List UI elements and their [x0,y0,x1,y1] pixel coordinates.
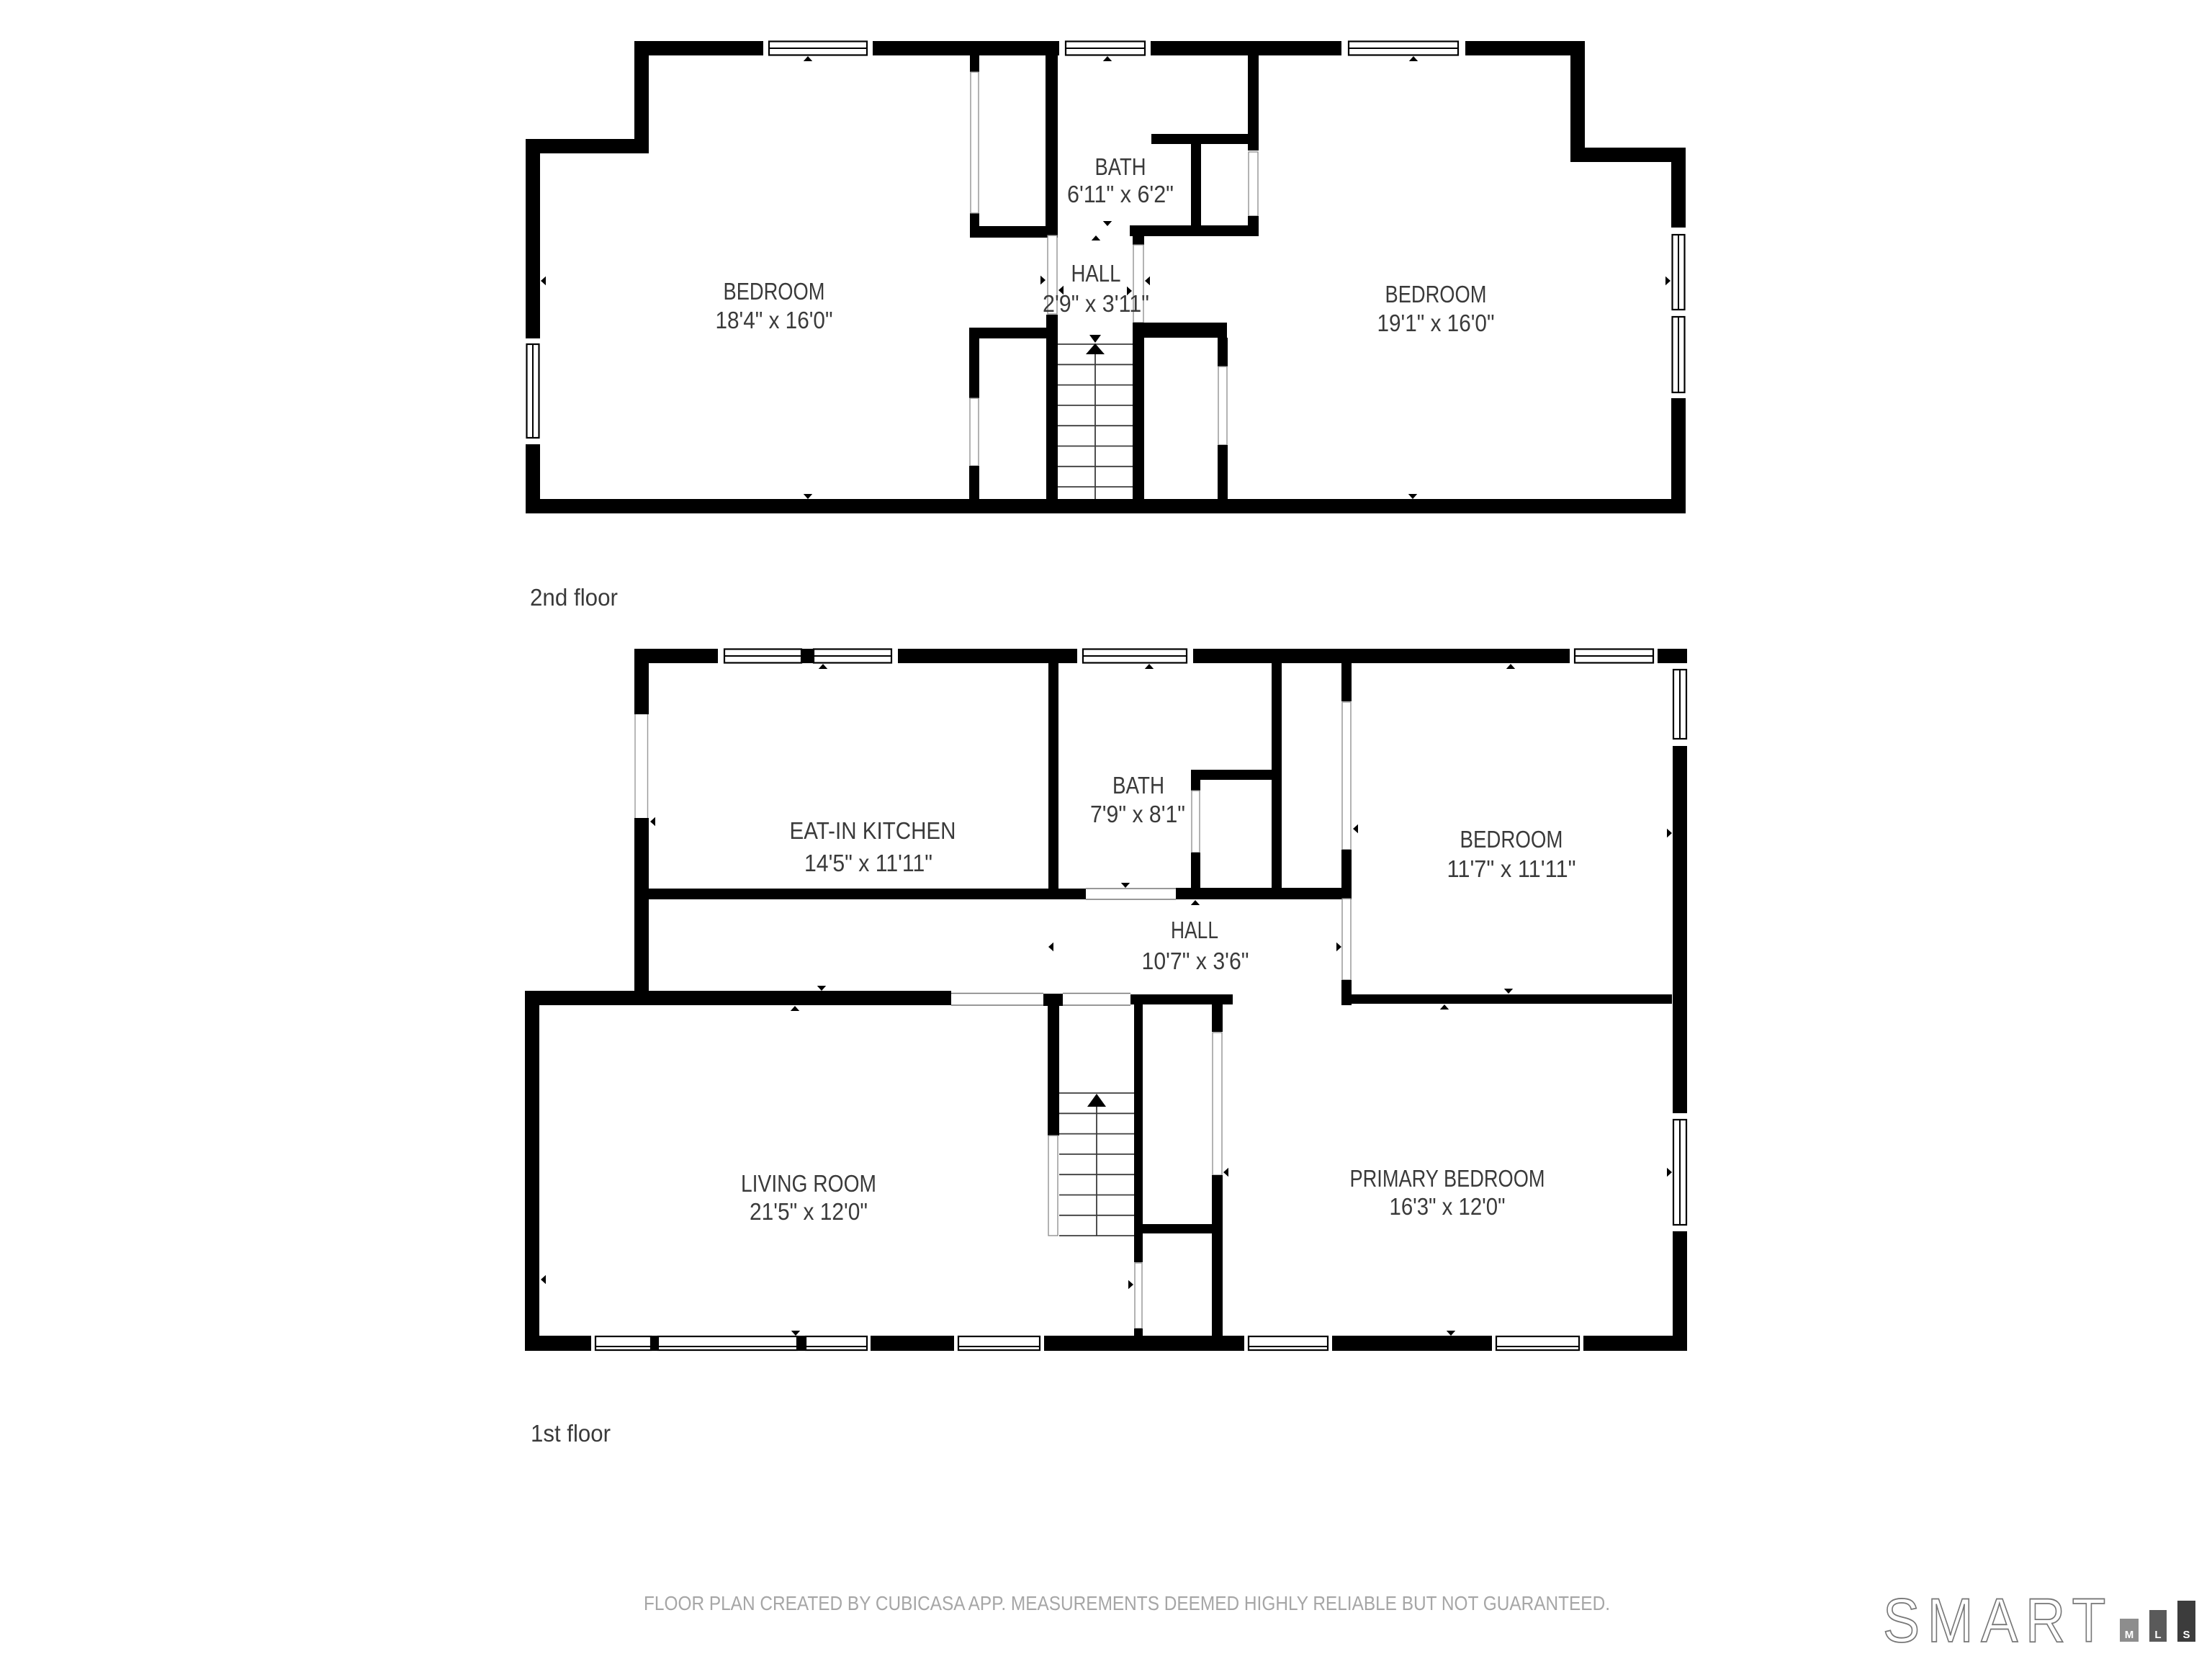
svg-text:1st floor: 1st floor [531,1421,611,1447]
svg-text:19'1" x 16'0": 19'1" x 16'0" [1377,310,1495,337]
svg-text:2nd floor: 2nd floor [530,585,618,611]
svg-text:SMART: SMART [1883,1586,2113,1655]
svg-text:18'4" x 16'0": 18'4" x 16'0" [716,307,833,334]
svg-text:7'9" x 8'1": 7'9" x 8'1" [1090,801,1185,828]
svg-text:16'3" x 12'0": 16'3" x 12'0" [1390,1194,1506,1220]
svg-text:2'9" x 3'11": 2'9" x 3'11" [1043,291,1149,318]
svg-text:BEDROOM: BEDROOM [724,279,825,305]
svg-text:11'7" x 11'11": 11'7" x 11'11" [1447,856,1576,883]
svg-text:M: M [2125,1629,2134,1641]
svg-text:LIVING ROOM: LIVING ROOM [741,1171,876,1197]
svg-text:S: S [2182,1629,2190,1641]
svg-text:10'7" x 3'6": 10'7" x 3'6" [1142,948,1249,975]
svg-text:6'11" x 6'2": 6'11" x 6'2" [1067,181,1174,208]
svg-text:PRIMARY BEDROOM: PRIMARY BEDROOM [1350,1166,1545,1192]
svg-text:FLOOR PLAN CREATED BY CUBICASA: FLOOR PLAN CREATED BY CUBICASA APP. MEAS… [644,1592,1610,1614]
svg-text:21'5" x 12'0": 21'5" x 12'0" [750,1199,868,1226]
svg-text:EAT-IN KITCHEN: EAT-IN KITCHEN [790,818,956,845]
svg-text:BATH: BATH [1112,773,1164,799]
svg-text:BEDROOM: BEDROOM [1460,827,1563,853]
svg-text:L: L [2154,1629,2161,1641]
svg-text:BEDROOM: BEDROOM [1385,282,1487,308]
svg-text:HALL: HALL [1071,261,1121,287]
svg-text:14'5" x 11'11": 14'5" x 11'11" [804,850,932,877]
svg-text:BATH: BATH [1095,154,1146,181]
svg-text:HALL: HALL [1171,917,1218,944]
